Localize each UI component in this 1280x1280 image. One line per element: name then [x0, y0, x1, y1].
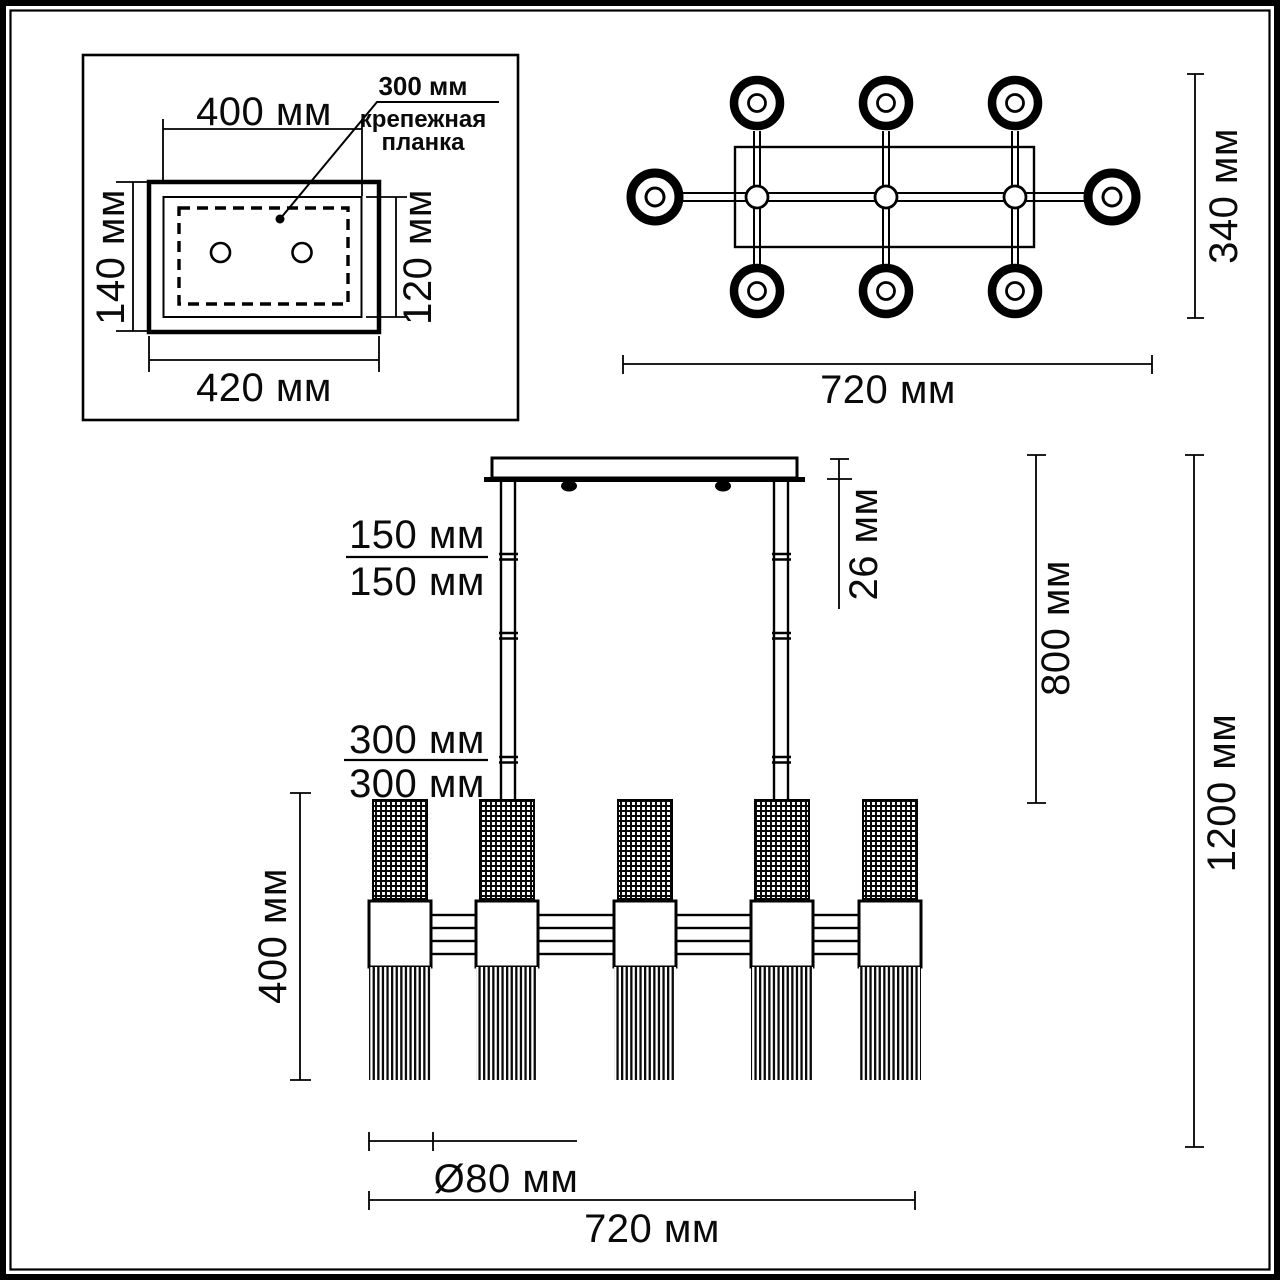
top-view-joints [746, 186, 1026, 208]
suspension-rods [501, 482, 788, 800]
lamp-column [751, 800, 813, 1080]
dim-mount-right-height: 120 мм [396, 189, 440, 325]
top-view-lamps-bottom-row [734, 268, 1038, 314]
dim-mount-left-height: 140 мм [89, 189, 133, 325]
lamp-column [614, 800, 676, 1080]
mount-hole-left [211, 243, 230, 262]
canopy-body [492, 458, 797, 478]
dim-rod-segment-1: 150 мм [349, 513, 485, 557]
top-view: 340 мм 720 мм [623, 74, 1246, 412]
canopy-inner-rect [164, 197, 362, 317]
dim-rod-segment-3: 300 мм [349, 718, 485, 762]
mount-plate-diagram: 300 мм крепежная планка 400 мм 140 мм 12… [83, 55, 518, 420]
dim-bracket-size: 300 мм [378, 71, 467, 101]
top-view-lamps-top-row [734, 80, 1038, 126]
dim-front-width: 720 мм [584, 1207, 720, 1251]
dim-top-view-depth: 340 мм [1202, 128, 1246, 264]
canopy-screw-left [561, 481, 577, 492]
front-view: 150 мм 150 мм 300 мм 300 мм [251, 455, 1244, 1251]
lamp-column [859, 800, 921, 1080]
dim-rod-segment-2: 150 мм [349, 560, 485, 604]
dim-suspension-height: 800 мм [1034, 560, 1078, 696]
lamp-column [369, 800, 431, 1080]
mount-hole-right [293, 243, 312, 262]
dim-shade-diameter-lines [369, 1132, 577, 1151]
dim-mount-bottom-width: 420 мм [196, 366, 332, 410]
canopy-flange [484, 477, 805, 482]
rod-connector-bands [499, 554, 791, 763]
technical-drawing: 300 мм крепежная планка 400 мм 140 мм 12… [0, 0, 1280, 1280]
dim-canopy-height: 26 мм [842, 487, 886, 600]
bracket-name-line2: планка [382, 129, 466, 156]
canopy-outer-rect [149, 182, 379, 332]
dim-shade-diameter: Ø80 мм [434, 1157, 579, 1201]
dim-top-view-width: 720 мм [820, 368, 956, 412]
dim-mount-top-width: 400 мм [196, 90, 332, 134]
lamp-column [476, 800, 538, 1080]
dim-lamp-height: 400 мм [251, 868, 295, 1004]
dim-total-height: 1200 мм [1200, 714, 1244, 873]
canopy-screw-right [715, 481, 731, 492]
mount-bracket-dashed-rect [179, 208, 348, 304]
